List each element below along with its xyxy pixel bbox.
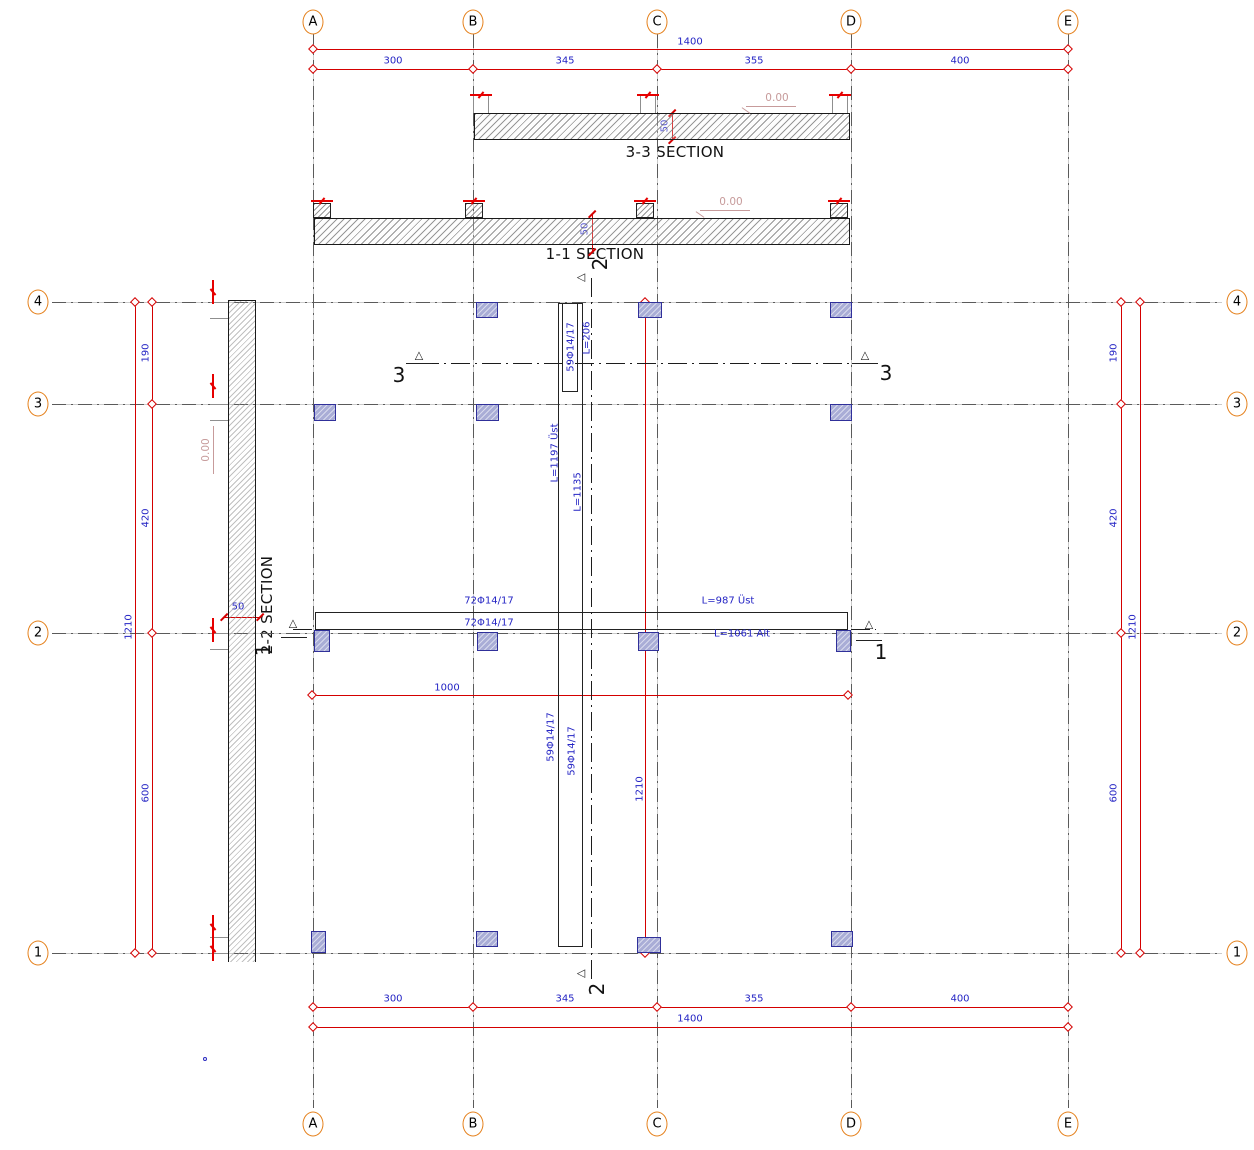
- section-3-3-title: 3-3 SECTION: [626, 143, 725, 161]
- grid-bubble-2: 2: [28, 621, 49, 646]
- section-1-marker-number: 1: [251, 644, 275, 657]
- dim-text-total: 1210: [1128, 614, 1139, 639]
- section-3-marker-number: 3: [880, 361, 893, 385]
- grid-label: D: [846, 1117, 856, 1132]
- section-1-1-column-stub: [830, 203, 848, 218]
- grid-label: D: [846, 15, 856, 30]
- dim-tick-diamond: [652, 64, 662, 74]
- section-2-marker-number: 2: [588, 258, 612, 271]
- dim-tick-diamond: [1116, 399, 1126, 409]
- section-2-2-wall-strip: [228, 300, 256, 962]
- section-3-marker-number: 3: [393, 363, 406, 387]
- grid-bubble-E: E: [1058, 10, 1079, 35]
- grid-label: 2: [1233, 626, 1241, 641]
- dim-text-total: 1210: [124, 614, 135, 639]
- level-label-0.00: 0.00: [719, 196, 742, 208]
- dim-text-segment: 190: [141, 343, 152, 362]
- dim-tick-diamond: [130, 297, 140, 307]
- dim-line-total: [313, 49, 1068, 50]
- dim-text-segment: 345: [555, 56, 574, 67]
- plan-column: [476, 931, 498, 947]
- dim-text-segment: 400: [950, 56, 969, 67]
- rebar-label: 72Φ14/17: [464, 618, 513, 629]
- dim-tick-diamond: [468, 1002, 478, 1012]
- dim-line-total: [1140, 302, 1141, 953]
- dim-text-segment: 420: [141, 508, 152, 527]
- dim-tick-diamond: [1063, 1002, 1073, 1012]
- plan-column: [314, 404, 336, 421]
- rebar-label: L=1135: [573, 472, 584, 511]
- grid-bubble-A: A: [303, 10, 324, 35]
- grid-bubble-C: C: [647, 1112, 668, 1137]
- dim-text-segment: 600: [1109, 783, 1120, 802]
- artifact-dot: [203, 1057, 207, 1061]
- grid-bubble-D: D: [841, 10, 862, 35]
- section-marker-triangle-icon: ◁: [577, 271, 585, 284]
- section-3-cut-line: [420, 363, 868, 364]
- dim-tick-diamond: [147, 297, 157, 307]
- dim-tick-diamond: [308, 64, 318, 74]
- dim-tick-diamond: [1135, 297, 1145, 307]
- level-label-0.00: 0.00: [765, 92, 788, 104]
- plan-column: [638, 302, 662, 318]
- dim-text-segment: 420: [1109, 508, 1120, 527]
- rebar-label: L=1061 Alt: [714, 629, 770, 640]
- grid-bubble-C: C: [647, 10, 668, 35]
- level-leader: [746, 106, 796, 107]
- section-marker-triangle-icon: △: [289, 617, 297, 630]
- rebar-label: 59Φ14/17: [566, 322, 577, 371]
- grid-bubble-1: 1: [1227, 941, 1248, 966]
- plan-column: [477, 632, 498, 651]
- dim-text-total: 1400: [677, 1014, 702, 1025]
- dim-tick-diamond: [308, 1022, 318, 1032]
- section-3-3-column-stub: [640, 96, 656, 113]
- dim-tick-diamond: [846, 64, 856, 74]
- grid-label: B: [469, 15, 478, 30]
- plan-column: [638, 632, 659, 651]
- rebar-label: 59Φ14/17: [546, 712, 557, 761]
- dim-line-segments: [313, 1007, 1068, 1008]
- dim-text-segment: 300: [383, 994, 402, 1005]
- section-marker-triangle-icon: △: [861, 349, 869, 362]
- grid-label: 4: [34, 295, 42, 310]
- grid-bubble-B: B: [463, 10, 484, 35]
- dim-text-1000: 1000: [434, 683, 459, 694]
- section-2-marker-number: 2: [585, 983, 609, 996]
- section-2-2-column-stub: [210, 302, 228, 319]
- section-1-1-column-stub: [636, 203, 654, 218]
- grid-label: A: [309, 1117, 318, 1132]
- rebar-label: 72Φ14/17: [464, 596, 513, 607]
- plan-column: [314, 630, 330, 652]
- grid-label: B: [469, 1117, 478, 1132]
- dim-tick-diamond: [308, 1002, 318, 1012]
- grid-bubble-4: 4: [1227, 290, 1248, 315]
- grid-label: C: [652, 1117, 661, 1132]
- dim-text-segment: 300: [383, 56, 402, 67]
- rebar-label: L=987 Üst: [702, 596, 755, 607]
- section-1-marker-number: 1: [875, 640, 888, 664]
- section-3-3-column-stub: [473, 96, 489, 113]
- grid-line-dash-E: [1068, 34, 1069, 1108]
- grid-bubble-4: 4: [28, 290, 49, 315]
- section-marker-underline: [852, 363, 878, 364]
- dim-line-segments: [313, 69, 1068, 70]
- dim-line-total: [135, 302, 136, 953]
- section-3-3-column-stub: [832, 96, 848, 113]
- rebar-label: 59Φ14/17: [567, 726, 578, 775]
- grid-bubble-D: D: [841, 1112, 862, 1137]
- dim-tick-diamond: [147, 399, 157, 409]
- grid-label: 3: [34, 397, 42, 412]
- grid-label: 4: [1233, 295, 1241, 310]
- grid-bubble-B: B: [463, 1112, 484, 1137]
- cad-drawing-canvas: 3-3 SECTION 1-1 SECTION 2-2 SECTION AABB…: [0, 0, 1254, 1150]
- dim-tick-diamond: [130, 948, 140, 958]
- grid-bubble-3: 3: [1227, 392, 1248, 417]
- dim-tick-diamond: [307, 690, 317, 700]
- rebar-label: L=1197 Üst: [550, 423, 561, 482]
- dim-tick-diamond: [652, 1002, 662, 1012]
- dim-tick-diamond: [147, 948, 157, 958]
- section-2-2-title: 2-2 SECTION: [258, 556, 276, 655]
- grid-label: E: [1064, 15, 1072, 30]
- grid-bubble-E: E: [1058, 1112, 1079, 1137]
- dim-text-total: 1400: [677, 37, 702, 48]
- level-leader: [213, 426, 214, 474]
- level-label-0.00: 0.00: [200, 438, 212, 461]
- grid-label: 3: [1233, 397, 1241, 412]
- dim-text-segment: 345: [555, 994, 574, 1005]
- level-leader-hook: [696, 211, 705, 218]
- dim-text-1210: 1210: [635, 776, 646, 801]
- dim-tick-diamond: [1063, 64, 1073, 74]
- dim-text-segment: 600: [141, 783, 152, 802]
- dim-text-segment: 355: [744, 994, 763, 1005]
- plan-column: [637, 937, 661, 953]
- section-2-2-column-stub: [210, 404, 228, 421]
- section-1-1-slab: [314, 218, 850, 245]
- dim-tick-diamond: [1116, 628, 1126, 638]
- plan-column: [830, 302, 852, 318]
- section-3-3-slab: [474, 113, 850, 140]
- grid-label: 1: [34, 946, 42, 961]
- grid-line-dash-B: [473, 34, 474, 1108]
- dim-text-segment: 355: [744, 56, 763, 67]
- grid-bubble-1: 1: [28, 941, 49, 966]
- dim-text-segment: 190: [1109, 343, 1120, 362]
- dim-tick-diamond: [1116, 297, 1126, 307]
- section-marker-triangle-icon: △: [865, 618, 873, 631]
- section-marker-underline: [281, 637, 307, 638]
- section-marker-underline: [406, 363, 432, 364]
- dim-tick-diamond: [846, 1002, 856, 1012]
- dim-tick-diamond: [308, 44, 318, 54]
- dim-line-total: [313, 1027, 1068, 1028]
- dim-tick-diamond: [1135, 948, 1145, 958]
- section-1-1-column-stub: [465, 203, 483, 218]
- section-marker-triangle-icon: △: [415, 349, 423, 362]
- plan-column: [831, 931, 853, 947]
- section-marker-triangle-icon: ◁: [577, 967, 585, 980]
- grid-label: E: [1064, 1117, 1072, 1132]
- grid-bubble-A: A: [303, 1112, 324, 1137]
- grid-label: 2: [34, 626, 42, 641]
- plan-column: [311, 931, 326, 953]
- plan-column: [830, 404, 852, 421]
- rebar-label: L=206: [582, 321, 593, 354]
- dim-tick-diamond: [468, 64, 478, 74]
- grid-bubble-3: 3: [28, 392, 49, 417]
- dim-text-segment: 400: [950, 994, 969, 1005]
- plan-column: [476, 302, 498, 318]
- grid-label: C: [652, 15, 661, 30]
- dim-tick-diamond: [1063, 44, 1073, 54]
- section-1-1-column-stub: [313, 203, 331, 218]
- dim-tick-diamond: [1116, 948, 1126, 958]
- grid-label: 1: [1233, 946, 1241, 961]
- dim-tick-diamond: [147, 628, 157, 638]
- dim-tick-diamond: [1063, 1022, 1073, 1032]
- rebar-extent-horizontal: [315, 612, 848, 630]
- plan-column: [836, 630, 851, 652]
- level-leader: [700, 210, 750, 211]
- plan-column: [476, 404, 499, 421]
- grid-bubble-2: 2: [1227, 621, 1248, 646]
- grid-label: A: [309, 15, 318, 30]
